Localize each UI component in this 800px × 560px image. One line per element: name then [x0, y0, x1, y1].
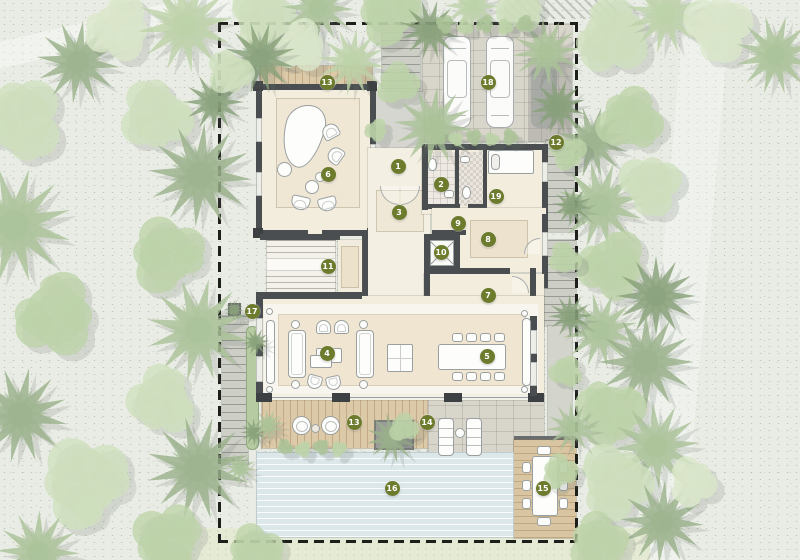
dining-chair	[480, 333, 491, 342]
wall-pier	[256, 393, 272, 402]
plan-marker-8: 8	[481, 232, 496, 247]
window	[530, 362, 537, 386]
column-dot	[266, 308, 273, 315]
side-table	[359, 320, 368, 329]
plan-marker-5: 5	[480, 349, 495, 364]
plan-marker-2: 2	[434, 177, 449, 192]
plan-marker-18: 18	[481, 75, 496, 90]
dining-chair	[452, 372, 463, 381]
plan-marker-1: 1	[391, 159, 406, 174]
plan-marker-10: 10	[434, 245, 449, 260]
bedroom8-rug	[470, 220, 528, 258]
wall	[422, 144, 428, 210]
dining-chair	[452, 333, 463, 342]
dining-chair	[480, 372, 491, 381]
side-table	[291, 380, 300, 389]
wall	[256, 292, 362, 299]
wall	[256, 84, 376, 90]
plan-marker-11: 11	[321, 259, 336, 274]
bed-ottoman	[277, 162, 292, 177]
wall-pier	[253, 81, 263, 91]
armchair	[334, 320, 349, 334]
plan-marker-4: 4	[320, 346, 335, 361]
plan-marker-15: 15	[536, 481, 551, 496]
dining-table	[438, 344, 506, 370]
plan-marker-16: 16	[385, 481, 400, 496]
plan-marker-7: 7	[481, 288, 496, 303]
wall-pier	[332, 393, 350, 402]
house-layer	[0, 0, 800, 560]
plan-marker-13: 13	[347, 415, 362, 430]
sink	[460, 156, 470, 163]
wall-pier	[444, 393, 462, 402]
site-plan: 1234567891011121313141516171819	[0, 0, 800, 560]
column-dot	[521, 386, 528, 393]
wall	[455, 150, 459, 206]
wall	[483, 150, 487, 210]
armchair	[316, 320, 331, 334]
column-dot	[266, 386, 273, 393]
toilet	[428, 158, 437, 171]
dining-chair	[466, 333, 477, 342]
window	[542, 162, 548, 182]
plan-marker-3: 3	[392, 205, 407, 220]
plan-marker-13: 13	[320, 75, 335, 90]
sofa	[356, 330, 374, 378]
window	[256, 356, 263, 382]
window	[256, 118, 262, 142]
sofa	[288, 330, 306, 378]
window-seat	[522, 318, 531, 386]
plan-marker-17: 17	[245, 304, 260, 319]
wall	[362, 230, 368, 300]
dining-chair	[494, 372, 505, 381]
window-seat	[266, 320, 275, 384]
square-table	[387, 344, 413, 372]
plan-marker-14: 14	[420, 415, 435, 430]
glass-wall	[256, 395, 544, 400]
wall	[256, 84, 262, 236]
sink	[444, 190, 454, 198]
window	[256, 172, 262, 196]
dining-chair	[466, 372, 477, 381]
wall-pier	[367, 81, 377, 91]
plan-marker-6: 6	[321, 167, 336, 182]
wall	[424, 268, 510, 274]
stair-side-rug	[341, 246, 359, 288]
column-dot	[521, 310, 528, 317]
plan-marker-19: 19	[489, 189, 504, 204]
window	[530, 330, 537, 354]
side-table	[359, 380, 368, 389]
dining-chair	[494, 333, 505, 342]
plan-marker-9: 9	[451, 216, 466, 231]
round-table	[305, 180, 319, 194]
toilet	[462, 186, 471, 199]
window	[256, 318, 263, 344]
side-table	[291, 320, 300, 329]
plan-marker-12: 12	[549, 135, 564, 150]
window	[542, 232, 548, 256]
bed-pillow	[491, 154, 500, 170]
